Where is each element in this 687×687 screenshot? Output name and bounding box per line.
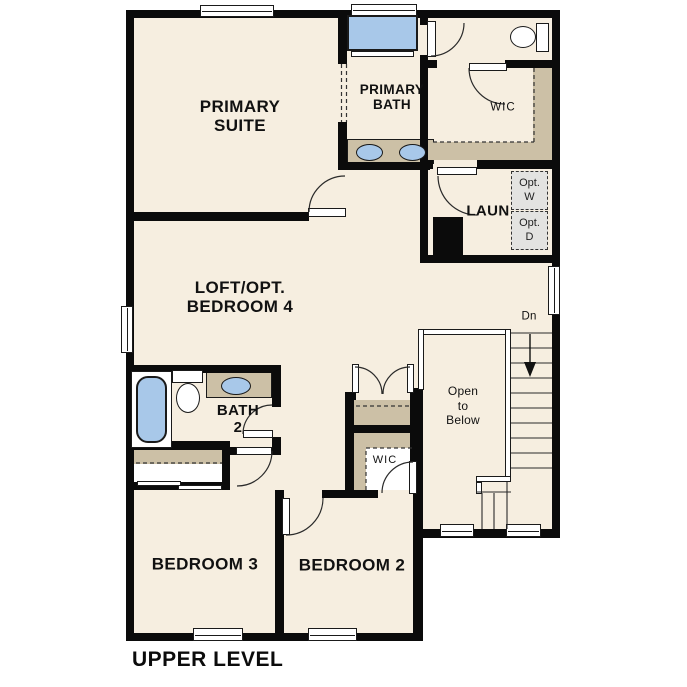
wall-segment	[338, 18, 347, 64]
bedroom2-closet-shelf	[354, 400, 411, 427]
wall-segment	[420, 160, 433, 169]
wall-segment	[345, 425, 415, 433]
door-leaf	[282, 498, 290, 535]
sink-basin	[356, 144, 383, 161]
floor-plan: Opt. W Opt. D	[0, 0, 687, 687]
wall-segment	[413, 490, 423, 641]
room-label-bedroom2: BEDROOM 2	[299, 555, 406, 574]
wall-segment	[420, 169, 428, 262]
window	[548, 266, 560, 315]
optional-washer-label-line1: Opt.	[519, 177, 540, 190]
window	[440, 524, 474, 537]
door-leaf	[437, 167, 477, 175]
wall-segment	[338, 162, 430, 170]
optional-dryer-label-line1: Opt.	[519, 217, 540, 230]
window	[193, 628, 243, 641]
room-label-bedroom2-wic: WIC	[373, 454, 397, 466]
shower-fixture	[347, 15, 418, 51]
stair-direction-label: Dn	[521, 311, 536, 324]
wall-segment	[345, 392, 354, 497]
open-to-below-label: Open to Below	[446, 384, 480, 428]
sink-basin	[221, 377, 251, 395]
door-leaf	[427, 21, 436, 57]
room-label-primary-bath: PRIMARYBATH	[360, 82, 425, 113]
door-leaf	[409, 461, 417, 494]
wall-segment	[345, 392, 356, 400]
stair-railing	[420, 329, 511, 335]
room-label-loft: LOFT/OPT.BEDROOM 4	[187, 278, 294, 316]
utility-chase	[433, 217, 463, 258]
wall-segment	[272, 365, 281, 407]
bedroom3-closet-shelf	[134, 450, 223, 464]
door-leaf	[308, 208, 346, 217]
toilet-tank	[172, 370, 203, 383]
room-label-primary-wic: WIC	[490, 102, 515, 115]
room-label-bath2: BATH2	[217, 403, 259, 437]
double-door-leaf	[352, 364, 359, 393]
stair-railing	[418, 329, 424, 390]
room-label-primary-suite: PRIMARYSUITE	[200, 97, 281, 135]
stair-railing	[505, 329, 511, 482]
wall-segment	[505, 60, 560, 68]
room-label-laundry: LAUN	[466, 204, 509, 221]
double-door-leaf	[407, 364, 414, 393]
window	[506, 524, 541, 537]
stair-railing	[476, 482, 482, 494]
door-leaf	[236, 447, 272, 455]
bedroom3-closet-interior	[134, 464, 223, 482]
optional-dryer-label-line2: D	[526, 231, 534, 244]
wall-segment	[126, 633, 423, 641]
sliding-door-panel	[178, 485, 222, 490]
door-leaf	[469, 63, 507, 71]
bedroom2-wic-shelf-top	[354, 433, 415, 448]
primary-wic-shelf-bottom	[428, 142, 552, 160]
optional-washer: Opt. W	[511, 171, 548, 210]
toilet-bowl	[510, 26, 536, 48]
sink-basin	[399, 144, 426, 161]
optional-dryer: Opt. D	[511, 211, 548, 250]
sliding-door-panel	[137, 481, 181, 486]
room-label-bedroom3: BEDROOM 3	[152, 554, 259, 573]
window	[308, 628, 357, 641]
window	[121, 306, 133, 353]
shower-curb	[351, 51, 414, 57]
wall-segment	[126, 212, 309, 221]
toilet-tank	[536, 23, 549, 52]
wall-segment	[126, 10, 560, 18]
bathtub-fixture	[136, 376, 167, 443]
wall-segment	[428, 60, 437, 68]
toilet-bowl	[176, 383, 200, 413]
page-title: UPPER LEVEL	[132, 648, 283, 672]
window	[200, 5, 274, 17]
wall-segment	[477, 160, 560, 169]
optional-washer-label-line2: W	[524, 191, 534, 204]
